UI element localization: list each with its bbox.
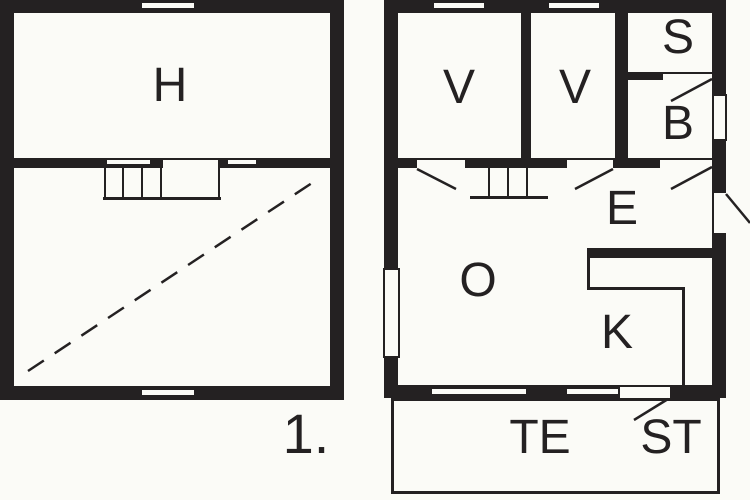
room-label-k: K bbox=[601, 309, 633, 357]
room-label-v1: V bbox=[443, 64, 475, 112]
room-label-o: O bbox=[459, 257, 496, 305]
room-label-s: S bbox=[662, 14, 694, 62]
stair-tread-line bbox=[526, 168, 528, 196]
window-left-o bbox=[383, 268, 400, 358]
door-opening-v1 bbox=[417, 158, 465, 168]
door-opening-s-b bbox=[663, 72, 712, 80]
stairwell-side-line bbox=[218, 160, 220, 198]
loft-dashed-line bbox=[28, 179, 318, 371]
entry-door-opening bbox=[712, 193, 726, 233]
door-swing-entry bbox=[726, 194, 750, 223]
kitchen-wall bbox=[587, 248, 713, 258]
room-label-h: H bbox=[153, 62, 188, 110]
window-right-b bbox=[712, 94, 727, 141]
stair-tread-line bbox=[122, 168, 124, 198]
floor-plan-canvas: H V V S B E O K TE ST 1. bbox=[0, 0, 750, 500]
stairs-base-line bbox=[470, 196, 548, 199]
door-opening-b-e bbox=[660, 158, 712, 168]
wall-s-b bbox=[628, 72, 663, 80]
left-building-left-wall bbox=[0, 0, 14, 400]
room-label-b: B bbox=[662, 100, 694, 148]
room-label-e: E bbox=[606, 185, 638, 233]
door-swing-b-e bbox=[671, 167, 712, 189]
window-top-v1 bbox=[432, 1, 486, 10]
window-bottom-k bbox=[565, 387, 620, 396]
door-swing-v1 bbox=[417, 169, 456, 189]
stair-tread-line bbox=[507, 168, 509, 196]
window-bottom-left-building bbox=[140, 388, 196, 397]
floor-number-label: 1. bbox=[283, 406, 330, 462]
room-label-v2: V bbox=[559, 64, 591, 112]
terrace-door-opening bbox=[620, 385, 670, 398]
window-top-v2 bbox=[547, 1, 601, 10]
window-top-left-building bbox=[140, 1, 196, 10]
loft-railing-opening-left bbox=[105, 158, 152, 166]
stairs-base-line bbox=[103, 197, 221, 200]
loft-railing-opening-right bbox=[226, 158, 258, 166]
kitchen-counter-edge bbox=[682, 287, 685, 385]
room-label-te: TE bbox=[509, 414, 570, 462]
kitchen-counter-edge bbox=[587, 287, 685, 290]
room-label-st: ST bbox=[640, 414, 701, 462]
stair-tread-line bbox=[488, 168, 490, 196]
wall-between-v-rooms bbox=[521, 13, 531, 168]
stair-tread-line bbox=[141, 168, 143, 198]
door-opening-v2 bbox=[567, 158, 613, 168]
window-bottom-o bbox=[430, 387, 528, 396]
stairwell-opening-left-building bbox=[163, 158, 219, 168]
stair-tread-line bbox=[160, 168, 162, 198]
stair-tread-line bbox=[104, 168, 106, 198]
kitchen-counter-edge bbox=[587, 248, 590, 289]
left-building-right-wall bbox=[330, 0, 344, 400]
wall-v-to-sb bbox=[615, 13, 628, 168]
